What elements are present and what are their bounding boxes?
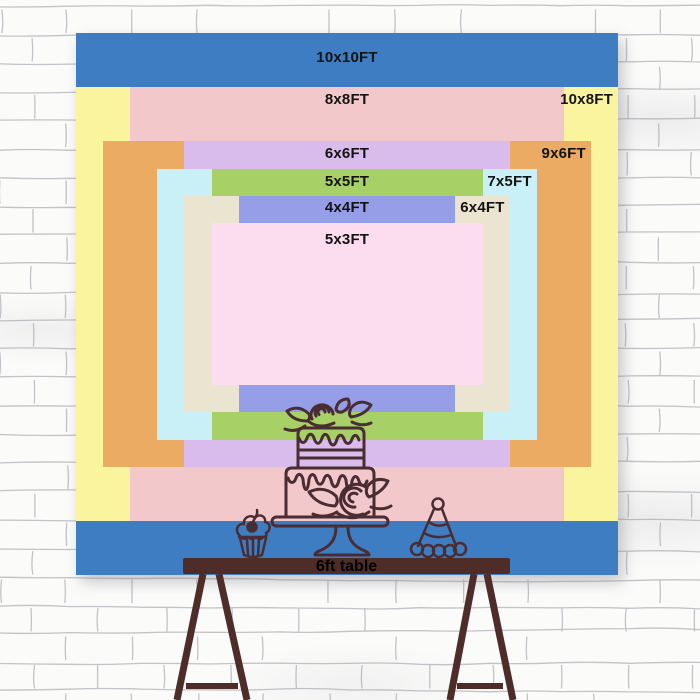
size-label-6x6ft: 6x6FT <box>76 145 618 163</box>
table-size-label: 6ft table <box>183 558 510 575</box>
size-label-4x4ft: 4x4FT <box>76 199 618 217</box>
size-label-10x10ft: 10x10FT <box>76 49 618 67</box>
backdrop-size-chart-scene: 10x10FT10x8FT8x8FT9x6FT6x6FT7x5FT5x5FT6x… <box>0 0 700 700</box>
size-label-5x3ft: 5x3FT <box>76 231 618 249</box>
size-label-8x8ft: 8x8FT <box>76 91 618 109</box>
size-label-5x5ft: 5x5FT <box>76 173 618 191</box>
